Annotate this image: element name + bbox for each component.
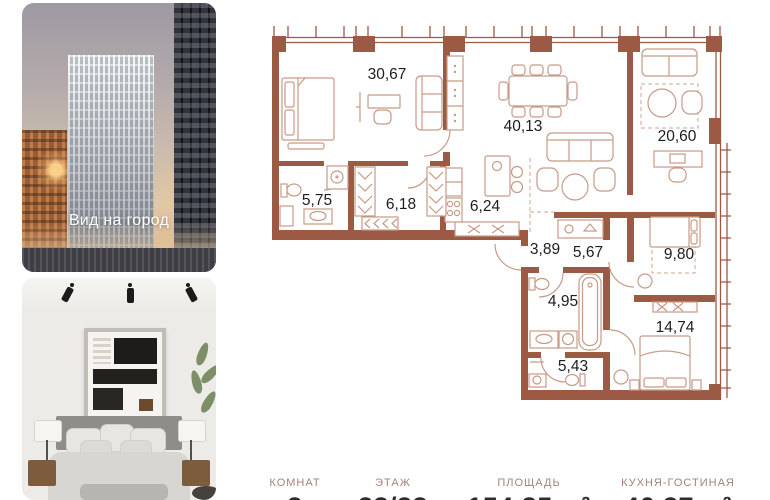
furniture-room-right [642, 49, 702, 182]
room-area-label: 3,89 [530, 241, 560, 258]
room-area-label: 6,24 [470, 198, 501, 215]
stat-label: ЭТАЖ [358, 477, 428, 489]
room-area-label: 4,95 [548, 293, 578, 310]
side-table [192, 486, 216, 500]
room-area-label: 9,80 [664, 246, 695, 263]
plant-leaf [194, 341, 211, 367]
spotlight-icon [127, 288, 134, 303]
floor-plan: 30,67 40,13 20,60 5,75 6,18 6,24 3,89 5,… [258, 0, 770, 460]
furniture-bathroom-2 [529, 274, 601, 350]
bedroom-photo[interactable] [22, 278, 216, 500]
stat-floor: ЭТАЖ 23/33 [358, 477, 428, 500]
plant-leaf [199, 389, 216, 414]
stat-rooms: КОМНАТ 3 [269, 477, 320, 500]
stat-value: 23/33 [358, 492, 428, 500]
lamp-stem [46, 440, 48, 460]
furniture-bedroom-master [282, 76, 442, 149]
room-area-label: 5,75 [302, 192, 332, 209]
room-area-labels: 30,67 40,13 20,60 5,75 6,18 6,24 3,89 5,… [302, 66, 697, 375]
room-area-label: 30,67 [368, 66, 407, 83]
room-area-label: 5,67 [573, 244, 603, 261]
spotlight-base [128, 283, 132, 287]
city-view-photo[interactable]: Вид на город [22, 3, 216, 272]
lamp-icon [34, 420, 62, 442]
furniture-wardrobe [558, 220, 603, 238]
spotlight-base [70, 283, 74, 287]
photo-caption: Вид на город [22, 212, 216, 230]
stat-label: ПЛОЩАДЬ [467, 477, 591, 489]
stat-kitchen-living: КУХНЯ-ГОСТИНАЯ 46,37 м² [621, 477, 735, 500]
bed-bench [80, 484, 168, 500]
stat-area: ПЛОЩАДЬ 154,35 м² [467, 477, 591, 500]
nightstand [28, 460, 56, 486]
lamp-icon [178, 420, 206, 442]
room-area-label: 6,18 [386, 196, 416, 213]
city-skyline [22, 248, 216, 272]
stat-label: КУХНЯ-ГОСТИНАЯ [621, 477, 735, 489]
stat-value: 3 [269, 492, 320, 500]
furniture-bedroom-3 [614, 302, 701, 390]
wall-art [84, 328, 166, 422]
room-area-label: 5,43 [558, 358, 588, 375]
room-area-label: 14,74 [656, 319, 695, 336]
room-area-label: 20,60 [658, 128, 697, 145]
stat-value: 154,35 м² [467, 492, 591, 500]
nightstand [182, 460, 210, 486]
listing-page: Вид на город [0, 0, 770, 500]
room-area-label: 40,13 [504, 118, 543, 135]
stat-label: КОМНАТ [269, 477, 320, 489]
spotlight-base [186, 283, 190, 287]
lamp-stem [190, 440, 192, 460]
stat-value: 46,37 м² [621, 492, 735, 500]
